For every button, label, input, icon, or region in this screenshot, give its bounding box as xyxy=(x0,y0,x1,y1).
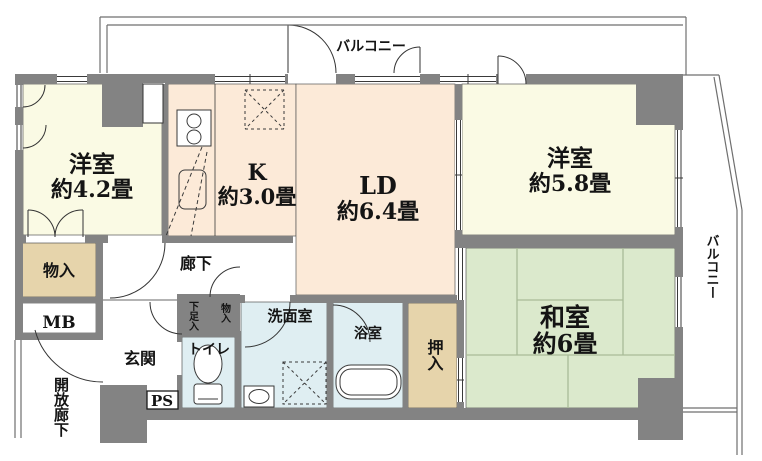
sliding-door-ld-west2 xyxy=(455,120,462,230)
window-top-ld xyxy=(355,77,420,82)
label-balcony-top: バルコニー xyxy=(336,39,406,55)
window-left-2 xyxy=(17,125,21,150)
corner-cabinet xyxy=(143,84,163,123)
floor-plan-svg: 洋室 約4.2畳 K 約3.0畳 LD 約6.4畳 洋室 約5.8畳 和室 約6… xyxy=(0,0,762,461)
washbasin-icon xyxy=(244,386,274,407)
window-top-west1 xyxy=(57,77,87,82)
room-kitchen xyxy=(168,84,296,236)
label-japanese-name: 和室 xyxy=(540,303,590,332)
label-ld-name: LD xyxy=(359,171,397,200)
label-western1-name: 洋室 xyxy=(69,151,115,178)
window-right-japanese xyxy=(678,277,682,327)
label-corridor: 廊下 xyxy=(180,254,212,273)
sliding-door-ld-japanese xyxy=(457,248,464,300)
pillar-bottom-left xyxy=(100,385,147,443)
pillar-bottom-right xyxy=(638,378,683,440)
label-washroom: 洗面室 xyxy=(267,307,312,325)
pillar-top-left xyxy=(102,77,143,127)
label-kitchen-size: 約3.0畳 xyxy=(218,184,297,209)
bathtub-icon xyxy=(336,365,401,399)
label-toilet: トイレ xyxy=(188,342,230,358)
label-ld-size: 約6.4畳 xyxy=(337,199,419,225)
label-open-corridor: 開放廊下 xyxy=(52,377,70,438)
label-storage: 物入 xyxy=(43,261,75,280)
open-corridor-lines xyxy=(15,340,21,438)
label-western1-size: 約4.2畳 xyxy=(51,177,133,203)
label-western2-size: 約5.8畳 xyxy=(529,171,611,197)
window-left-1 xyxy=(17,85,21,107)
label-pipe-space: PS xyxy=(151,392,173,410)
window-right-west2 xyxy=(675,130,683,227)
sliding-door-oshiire xyxy=(457,358,464,402)
label-entrance: 玄関 xyxy=(124,349,156,368)
label-shoe-cabinet: 下足入 xyxy=(187,301,199,332)
label-oshiire: 押入 xyxy=(425,338,444,371)
label-storage-small: 物入 xyxy=(219,302,231,324)
door-balcony-west2 xyxy=(498,56,526,84)
window-top-kitchen xyxy=(215,74,285,84)
label-western2-name: 洋室 xyxy=(547,145,593,172)
floor-plan: 洋室 約4.2畳 K 約3.0畳 LD 約6.4畳 洋室 約5.8畳 和室 約6… xyxy=(0,0,762,461)
door-balcony-kitchen xyxy=(288,25,336,73)
label-kitchen-name: K xyxy=(247,160,267,186)
window-top-ld2 xyxy=(440,74,496,84)
label-meter-box: MB xyxy=(42,313,75,333)
room-entrance xyxy=(103,300,177,390)
label-bathroom: 浴室 xyxy=(354,325,382,342)
stove-icon xyxy=(177,110,211,146)
label-balcony-right: バルコニー xyxy=(704,234,720,299)
label-japanese-size: 約6畳 xyxy=(533,329,598,358)
